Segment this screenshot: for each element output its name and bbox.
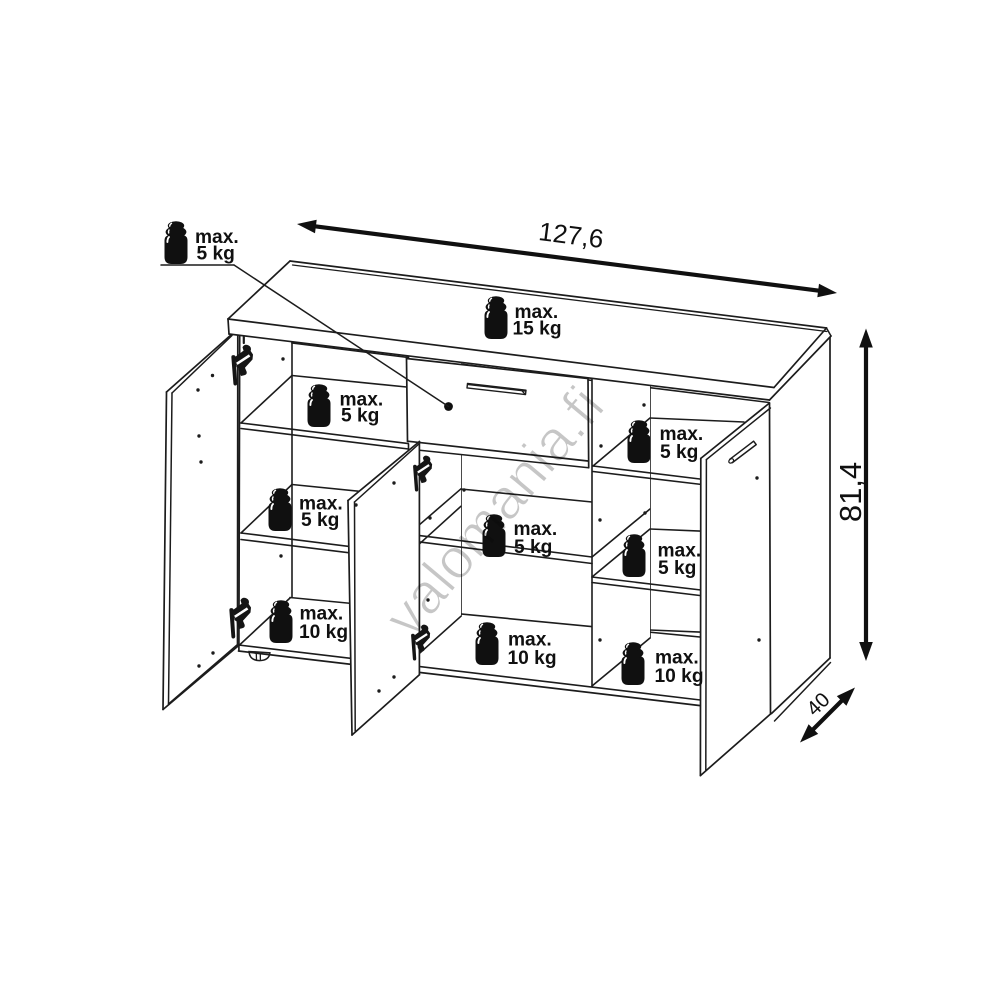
svg-text:5 kg: 5 kg (197, 244, 235, 265)
svg-text:81,4: 81,4 (833, 462, 868, 522)
svg-text:10 kg: 10 kg (655, 666, 704, 687)
svg-text:5 kg: 5 kg (514, 537, 552, 558)
svg-text:15 kg: 15 kg (513, 319, 562, 340)
svg-text:5 kg: 5 kg (301, 510, 339, 531)
svg-text:10 kg: 10 kg (299, 622, 348, 643)
svg-text:10 kg: 10 kg (508, 648, 557, 669)
svg-text:5 kg: 5 kg (341, 406, 379, 427)
svg-text:5 kg: 5 kg (658, 558, 696, 579)
svg-text:5 kg: 5 kg (660, 442, 698, 463)
